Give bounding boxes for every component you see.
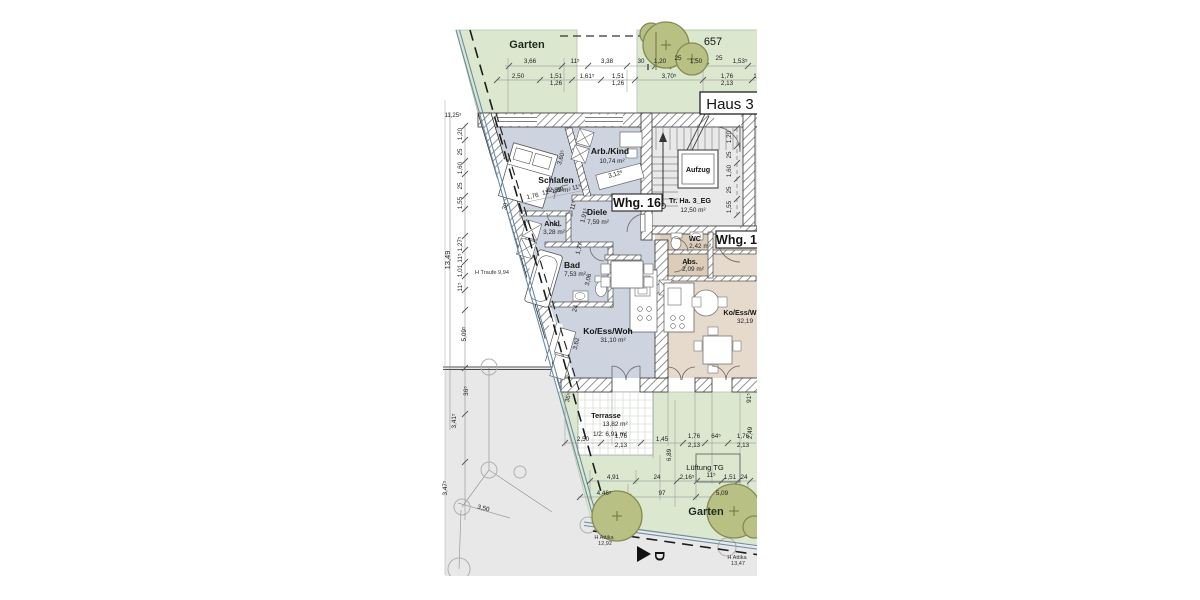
room-wc-name: WC (689, 234, 701, 243)
room-woh16-name: Ko/Ess/Woh (583, 326, 632, 336)
entrance-opening (714, 115, 741, 127)
sink-bad (573, 291, 588, 301)
dim-label: 1,76 (688, 433, 701, 440)
dim-label: 1,60 (457, 161, 464, 174)
whg16-label: Whg. 16 (613, 196, 661, 210)
dim-label: 1,26 (550, 80, 563, 87)
walkway-edges (577, 30, 637, 113)
dim-label: 3,66 (524, 58, 537, 65)
room-woh16-area: 31,10 m² (600, 337, 625, 344)
room-abs-area: 2,09 m² (682, 266, 704, 273)
dim-label: 25 (457, 182, 464, 190)
dim-label: 1,51 (724, 474, 737, 481)
floor-plan-drawing: Garten 657 Haus 3 Whg. 16 Tr. Ha. 3_EG 1… (0, 0, 1200, 600)
dim-label: 1,27⁵ (457, 236, 464, 251)
room-ankl-area: 3,28 m² (543, 229, 565, 236)
room-bad-area: 7,53 m² (564, 271, 586, 278)
elevator-label: Aufzug (686, 165, 710, 174)
dim-label: 4,46⁵ (597, 490, 612, 497)
floor-plan-canvas: Garten 657 Haus 3 Whg. 16 Tr. Ha. 3_EG 1… (0, 0, 1200, 600)
dim-label: 1,20 (654, 58, 667, 65)
dim-label: 1,53⁵ (733, 58, 748, 65)
dim-label: 11⁵ (457, 253, 464, 263)
room-schlafen-name: Schlafen (538, 175, 573, 185)
dim-label: 2,13 (688, 442, 701, 449)
dim-label: 2,50 (512, 73, 525, 80)
dim-label: 1,76 (721, 73, 734, 80)
section-letter: D (652, 551, 668, 561)
room-diele-area: 7,59 m² (587, 219, 609, 226)
room-wc-area: 2,42 m² (689, 243, 711, 250)
dim-label: 1,20 (726, 130, 733, 143)
h-attika-left-2: 12,92 (598, 541, 612, 547)
dim-label: 1,55 (457, 196, 464, 209)
dim-label: 2,50 (577, 436, 590, 443)
dim-label: 1,60 (726, 164, 733, 177)
dim-label: 1,76 (615, 433, 628, 440)
dim-label: 30 (637, 58, 645, 65)
whg16-entry-opening (641, 214, 652, 231)
dim-label: 6,89 (666, 448, 673, 461)
dim-label: 1,51 (612, 73, 625, 80)
house-title: Haus 3 (706, 96, 754, 113)
dim-label: 1,61⁵ (580, 73, 595, 80)
dim-label: 1,20 (457, 127, 464, 140)
kitchen17 (664, 283, 694, 332)
dim-label: 3,70⁵ (662, 73, 677, 80)
window-top-2 (585, 115, 623, 127)
window-top-1 (497, 115, 537, 127)
dim-label: 91⁵ (746, 393, 753, 403)
dim-label: 25 (457, 148, 464, 156)
dim-label: 2,16⁵ (680, 474, 695, 481)
room-woh17-area: 32,19 (737, 318, 753, 325)
room-bad-name: Bad (564, 260, 580, 270)
stairwell-area: 12,50 m² (680, 207, 705, 214)
dim-label: 2,13 (721, 80, 734, 87)
dim-label: 1,50 (690, 58, 703, 65)
dim-label: 1,55 (726, 200, 733, 213)
dim-label: 1,45 (656, 436, 669, 443)
dim-label: 1,26 (612, 80, 625, 87)
room-ankl-name: Ankl. (544, 219, 562, 228)
garden-bottom-label: Garten (688, 506, 724, 518)
dim-label: 25 (726, 186, 733, 194)
dim-label: 11⁵ (570, 58, 580, 65)
dim-label: 24 (740, 474, 748, 481)
stairwell-name: Tr. Ha. 3_EG (669, 196, 711, 205)
dim-label: 25 (726, 151, 733, 159)
dim-label: 1,01 (457, 264, 464, 277)
dim-label: 25 (715, 55, 723, 62)
dim-label: 3,47⁵ (442, 480, 449, 495)
room-abs-name: Abs. (682, 257, 698, 266)
room-woh17-name: Ko/Ess/W (723, 308, 756, 317)
h-traufe-label: H Traufe 9,94 (475, 270, 509, 276)
dim-label: 64⁵ (711, 433, 721, 440)
dim-label: 4,91 (607, 474, 620, 481)
terrace-name: Terrasse (591, 411, 620, 420)
lueftung-label: Lüftung TG (686, 463, 724, 472)
dim-label: 1 (753, 73, 757, 80)
dim-label: 3,41⁵ (451, 413, 458, 428)
whg17-label: Whg. 17 (716, 233, 764, 247)
dim-label: 5,09⁵ (461, 326, 468, 341)
room-arbkind-area: 10,74 m² (599, 158, 624, 165)
dim-label: 11,25⁵ (444, 112, 462, 119)
room-arbkind-name: Arb./Kind (591, 146, 629, 156)
dim-label: 1,51 (550, 73, 563, 80)
dim-label: 36⁵ (463, 386, 470, 396)
dim-label: 13,49 (443, 251, 452, 270)
parcel-number: 657 (704, 36, 722, 48)
h-attika-right-2: 13,47 (731, 561, 745, 567)
dim-label: 25 (674, 55, 682, 62)
dim-label: 24 (653, 474, 661, 481)
garden-top-label: Garten (509, 39, 545, 51)
terrace-area: 13,82 m² (602, 421, 627, 428)
dim-label: 5,09 (716, 490, 729, 497)
dim-label: 2,13 (615, 442, 628, 449)
room-diele-name: Diele (587, 207, 608, 217)
dim-label: 2,13 (737, 442, 750, 449)
dim-label: 1,76 (737, 433, 750, 440)
dim-label: 11⁵ (457, 282, 464, 292)
dim-label: 11⁵ (706, 472, 716, 479)
dim-label: 97 (658, 490, 666, 497)
dim-label: 3,38 (601, 58, 614, 65)
